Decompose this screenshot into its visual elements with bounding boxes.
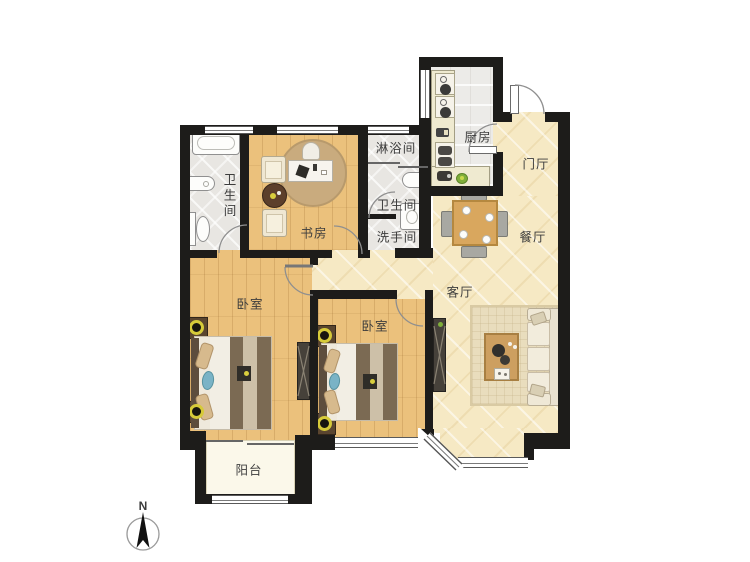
room-label-toilet: 卫生间 — [377, 195, 418, 214]
floor-plan: 卫生间 书房 淋浴间 卫生间 洗手间 厨房 门厅 餐厅 客厅 卧室 卧室 阳台 … — [0, 0, 750, 562]
master-bath-door-arc — [219, 225, 247, 253]
room-label-living-room: 客厅 — [446, 282, 473, 301]
room-label-bedroom-right: 卧室 — [361, 316, 388, 335]
bedroom-right-door-arc — [396, 299, 423, 326]
wardrobe-x-icon — [298, 346, 309, 396]
compass-icon — [127, 512, 159, 550]
bedroom-left-door-arc — [285, 267, 313, 295]
room-label-shower-room: 淋浴间 — [376, 138, 417, 157]
compass-north-label: N — [139, 499, 148, 513]
entry-door-arc — [515, 85, 544, 114]
room-label-balcony: 阳台 — [235, 460, 262, 479]
room-label-foyer: 门厅 — [522, 154, 549, 173]
room-label-study: 书房 — [300, 223, 327, 242]
room-label-master-bathroom: 卫生间 — [220, 173, 239, 220]
tv-cabinet-x-icon — [434, 326, 445, 384]
room-label-kitchen: 厨房 — [464, 127, 491, 146]
plan-overlay — [0, 0, 750, 562]
room-label-bedroom-left: 卧室 — [236, 294, 263, 313]
room-label-dining-room: 餐厅 — [519, 227, 546, 246]
study-door-arc — [334, 226, 362, 254]
room-label-washroom: 洗手间 — [377, 227, 418, 246]
